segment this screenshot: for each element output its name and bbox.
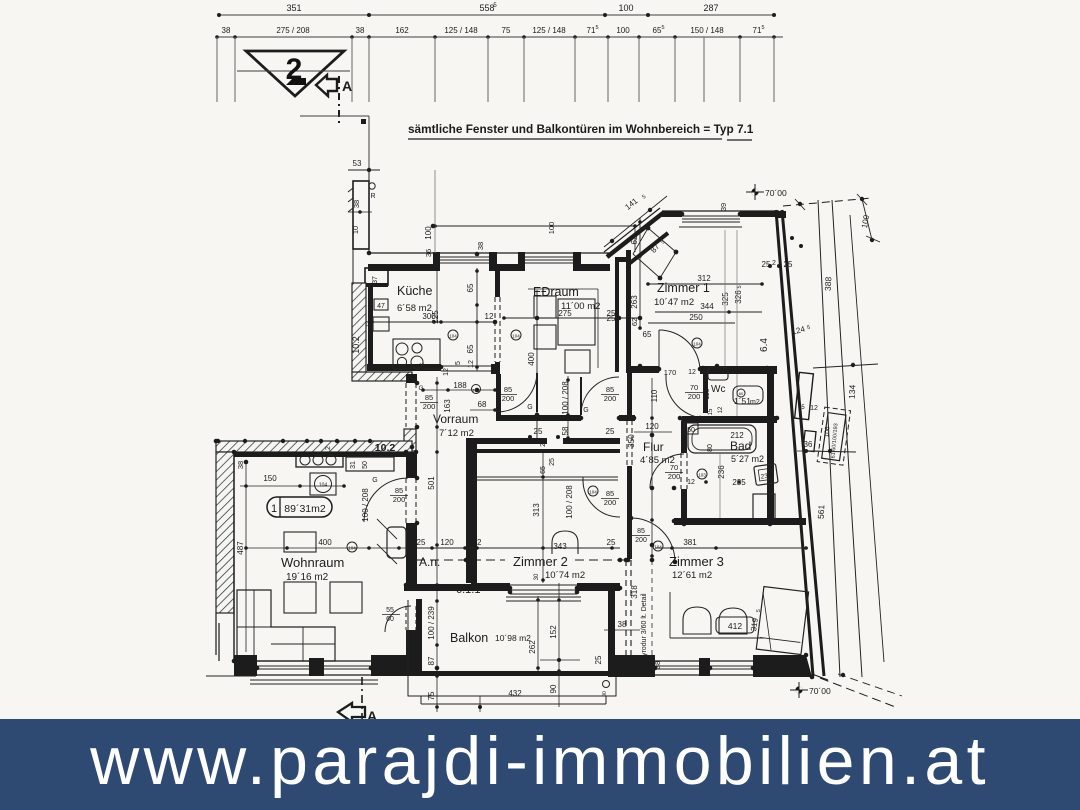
- svg-text:47: 47: [377, 303, 385, 310]
- svg-text:236: 236: [717, 465, 726, 479]
- svg-text:90: 90: [549, 684, 558, 693]
- svg-text:104: 104: [693, 342, 701, 347]
- svg-text:561: 561: [816, 504, 827, 519]
- svg-text:313: 313: [532, 503, 541, 517]
- svg-text:53: 53: [353, 159, 362, 168]
- svg-text:400: 400: [318, 538, 332, 547]
- svg-text:30: 30: [534, 573, 540, 580]
- svg-text:sämtliche Fenster und Balkontü: sämtliche Fenster und Balkontüren im Woh…: [408, 122, 754, 136]
- svg-text:150: 150: [263, 474, 277, 483]
- svg-text:85: 85: [637, 528, 645, 535]
- svg-text:134: 134: [847, 384, 858, 399]
- svg-text:200: 200: [423, 402, 436, 411]
- svg-text:312: 312: [697, 274, 711, 283]
- svg-text:250: 250: [689, 313, 703, 322]
- svg-text:7´12 m2: 7´12 m2: [439, 428, 474, 439]
- svg-text:152: 152: [549, 625, 558, 639]
- svg-text:25: 25: [594, 655, 603, 664]
- svg-text:325: 325: [721, 292, 730, 306]
- svg-text:100: 100: [547, 222, 556, 235]
- svg-text:Wohnraum: Wohnraum: [281, 555, 344, 570]
- svg-text:388: 388: [823, 276, 834, 291]
- svg-text:70´00: 70´00: [765, 188, 787, 198]
- svg-text:36: 36: [424, 249, 433, 257]
- svg-text:89´31m2: 89´31m2: [284, 503, 326, 515]
- svg-text:110: 110: [650, 389, 659, 402]
- svg-text:501: 501: [427, 476, 436, 490]
- svg-text:Vorraum: Vorraum: [433, 412, 478, 426]
- svg-text:10´74 m2: 10´74 m2: [545, 570, 585, 581]
- svg-text:G: G: [583, 407, 588, 414]
- svg-text:www.parajdi-immobilien.at: www.parajdi-immobilien.at: [89, 723, 990, 799]
- svg-text:25: 25: [784, 260, 793, 269]
- svg-text:5: 5: [661, 25, 664, 31]
- svg-text:65: 65: [643, 330, 652, 339]
- svg-text:137: 137: [736, 367, 749, 376]
- svg-text:110: 110: [704, 388, 711, 399]
- svg-text:25: 25: [534, 427, 543, 436]
- svg-text:120: 120: [440, 538, 454, 547]
- svg-text:12: 12: [687, 479, 695, 486]
- svg-text:350: 350: [627, 434, 636, 448]
- svg-text:200: 200: [502, 394, 515, 403]
- svg-text:10.2: 10.2: [351, 336, 361, 354]
- svg-text:A: A: [342, 78, 352, 94]
- svg-text:70´00: 70´00: [809, 686, 831, 696]
- svg-text:200: 200: [688, 392, 701, 401]
- svg-text:100: 100: [424, 226, 433, 240]
- svg-text:12: 12: [443, 368, 450, 376]
- svg-text:2: 2: [772, 260, 776, 267]
- svg-text:558: 558: [479, 3, 494, 13]
- svg-text:5´27 m2: 5´27 m2: [731, 454, 764, 464]
- svg-text:87: 87: [427, 656, 436, 665]
- svg-text:263: 263: [630, 295, 639, 309]
- svg-text:100 / 208: 100 / 208: [561, 381, 570, 415]
- svg-text:200: 200: [393, 495, 406, 504]
- svg-text:343: 343: [553, 542, 567, 551]
- svg-text:60: 60: [739, 391, 744, 396]
- svg-text:432: 432: [508, 689, 522, 698]
- svg-text:12: 12: [810, 405, 818, 412]
- svg-text:50: 50: [687, 427, 695, 434]
- svg-text:326: 326: [734, 290, 743, 304]
- svg-text:12: 12: [718, 406, 724, 413]
- svg-text:38: 38: [356, 26, 365, 35]
- svg-text:344: 344: [700, 302, 714, 311]
- svg-text:125 / 148: 125 / 148: [444, 26, 478, 35]
- svg-text:50: 50: [362, 461, 369, 469]
- svg-text:5: 5: [761, 25, 764, 31]
- svg-text:10.2: 10.2: [375, 442, 396, 454]
- svg-text:75: 75: [502, 26, 511, 35]
- svg-text:162: 162: [395, 26, 409, 35]
- svg-text:Flur: Flur: [643, 440, 664, 454]
- svg-text:G: G: [372, 477, 377, 484]
- svg-text:12: 12: [709, 369, 717, 376]
- svg-text:100 / 208: 100 / 208: [361, 488, 370, 522]
- svg-text:104: 104: [589, 490, 597, 495]
- svg-text:275 / 208: 275 / 208: [276, 26, 310, 35]
- svg-text:5: 5: [455, 361, 462, 365]
- svg-text:Zimmer 1: Zimmer 1: [657, 281, 710, 295]
- svg-text:65: 65: [466, 344, 475, 353]
- svg-text:150 / 148: 150 / 148: [690, 26, 724, 35]
- svg-text:381: 381: [683, 538, 697, 547]
- svg-text:38: 38: [236, 461, 245, 469]
- svg-text:25: 25: [607, 314, 616, 323]
- svg-text:10´47 m2: 10´47 m2: [654, 297, 694, 308]
- svg-text:188: 188: [453, 381, 467, 390]
- svg-text:4´85 m2: 4´85 m2: [640, 455, 675, 466]
- svg-text:103: 103: [698, 473, 706, 478]
- svg-text:104: 104: [449, 334, 457, 339]
- svg-text:487: 487: [236, 541, 245, 555]
- svg-text:85: 85: [425, 393, 433, 402]
- svg-text:31: 31: [350, 461, 357, 469]
- svg-text:38: 38: [222, 26, 231, 35]
- svg-text:38: 38: [476, 242, 485, 250]
- svg-text:12: 12: [485, 312, 494, 321]
- svg-text:104: 104: [654, 545, 662, 550]
- svg-text:60: 60: [386, 616, 394, 623]
- svg-text:200: 200: [668, 472, 681, 481]
- svg-text:55: 55: [386, 607, 394, 614]
- svg-text:400: 400: [527, 352, 536, 366]
- svg-text:100 / 208: 100 / 208: [565, 485, 574, 519]
- svg-text:6.1.1: 6.1.1: [456, 584, 480, 596]
- svg-text:100: 100: [616, 26, 630, 35]
- svg-text:25: 25: [606, 427, 615, 436]
- svg-text:125 / 148: 125 / 148: [532, 26, 566, 35]
- svg-text:106: 106: [824, 426, 832, 438]
- svg-text:12: 12: [473, 538, 482, 547]
- svg-text:58: 58: [561, 426, 570, 435]
- svg-text:85: 85: [606, 385, 614, 394]
- svg-text:287: 287: [703, 3, 718, 13]
- svg-text:275: 275: [558, 309, 572, 318]
- svg-text:Balkon: Balkon: [450, 631, 488, 645]
- svg-text:104: 104: [319, 483, 328, 489]
- svg-text:G: G: [418, 385, 423, 392]
- svg-text:1: 1: [271, 503, 277, 515]
- svg-text:200: 200: [604, 394, 617, 403]
- svg-text:25: 25: [540, 439, 547, 447]
- svg-text:38: 38: [235, 665, 244, 673]
- svg-text:262: 262: [528, 640, 537, 654]
- svg-text:R: R: [370, 193, 375, 200]
- svg-text:6.4: 6.4: [759, 338, 770, 352]
- svg-text:10´98 m2: 10´98 m2: [495, 633, 531, 643]
- svg-text:100 / 239: 100 / 239: [427, 606, 436, 640]
- svg-text:212: 212: [730, 431, 744, 440]
- svg-text:Wc: Wc: [711, 384, 725, 395]
- svg-text:104: 104: [348, 546, 356, 551]
- svg-text:10: 10: [351, 226, 360, 234]
- svg-text:Zimmer 2: Zimmer 2: [513, 554, 568, 569]
- svg-text:200: 200: [604, 498, 617, 507]
- svg-text:15: 15: [708, 408, 714, 415]
- svg-text:163: 163: [443, 399, 452, 413]
- svg-text:170: 170: [664, 368, 677, 377]
- svg-text:5: 5: [737, 285, 743, 288]
- svg-text:62: 62: [630, 318, 639, 326]
- svg-text:65: 65: [540, 466, 547, 474]
- svg-text:80: 80: [707, 444, 714, 452]
- svg-text:85: 85: [504, 385, 512, 394]
- svg-text:62: 62: [630, 235, 639, 244]
- svg-text:68: 68: [478, 400, 487, 409]
- svg-text:12: 12: [688, 369, 696, 376]
- svg-text:37: 37: [372, 276, 379, 284]
- svg-text:36: 36: [804, 440, 813, 449]
- svg-text:70: 70: [690, 383, 698, 392]
- svg-text:12: 12: [468, 360, 475, 368]
- svg-text:19´16 m2: 19´16 m2: [286, 571, 329, 583]
- svg-text:38: 38: [352, 200, 361, 208]
- svg-text:25: 25: [607, 538, 616, 547]
- svg-text:200: 200: [635, 537, 647, 544]
- svg-text:G: G: [527, 404, 532, 411]
- svg-text:104: 104: [512, 334, 520, 339]
- svg-text:Bad: Bad: [730, 439, 751, 453]
- svg-text:m2: m2: [750, 399, 760, 406]
- svg-text:A.n.: A.n.: [419, 555, 440, 569]
- svg-text:12´61 m2: 12´61 m2: [672, 570, 712, 581]
- svg-text:39: 39: [719, 203, 728, 211]
- svg-text:65: 65: [466, 283, 475, 292]
- svg-text:Styrodur 3/60 lt. Detail: Styrodur 3/60 lt. Detail: [641, 593, 648, 663]
- svg-text:412: 412: [728, 621, 742, 631]
- svg-text:25: 25: [549, 458, 556, 466]
- svg-text:5: 5: [595, 25, 598, 31]
- svg-text:85: 85: [395, 486, 403, 495]
- svg-text:12: 12: [419, 363, 426, 371]
- svg-text:25: 25: [417, 538, 426, 547]
- svg-text:Küche: Küche: [397, 284, 432, 298]
- svg-text:351: 351: [286, 3, 301, 13]
- svg-text:100: 100: [618, 3, 633, 13]
- svg-text:85: 85: [606, 489, 614, 498]
